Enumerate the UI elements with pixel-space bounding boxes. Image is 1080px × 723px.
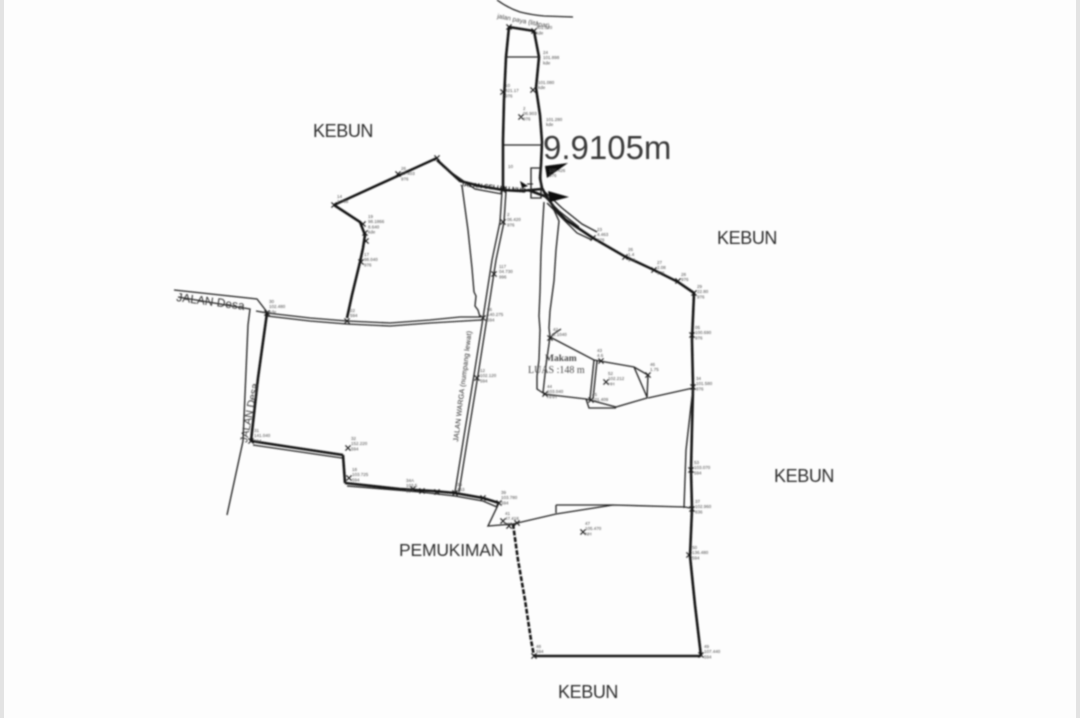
svg-text:LUAS :148 m: LUAS :148 m bbox=[528, 365, 585, 376]
svg-text:KEBUN: KEBUN bbox=[558, 682, 618, 702]
svg-text:PEMUKIMAN: PEMUKIMAN bbox=[399, 540, 503, 560]
svg-text:KEBUN: KEBUN bbox=[313, 121, 373, 141]
svg-text:9.9105m: 9.9105m bbox=[543, 129, 671, 166]
svg-text:KEBUN: KEBUN bbox=[774, 466, 834, 486]
svg-text:KEBUN: KEBUN bbox=[717, 228, 777, 248]
svg-text:Makam: Makam bbox=[545, 354, 577, 364]
svg-text:10: 10 bbox=[508, 164, 514, 169]
